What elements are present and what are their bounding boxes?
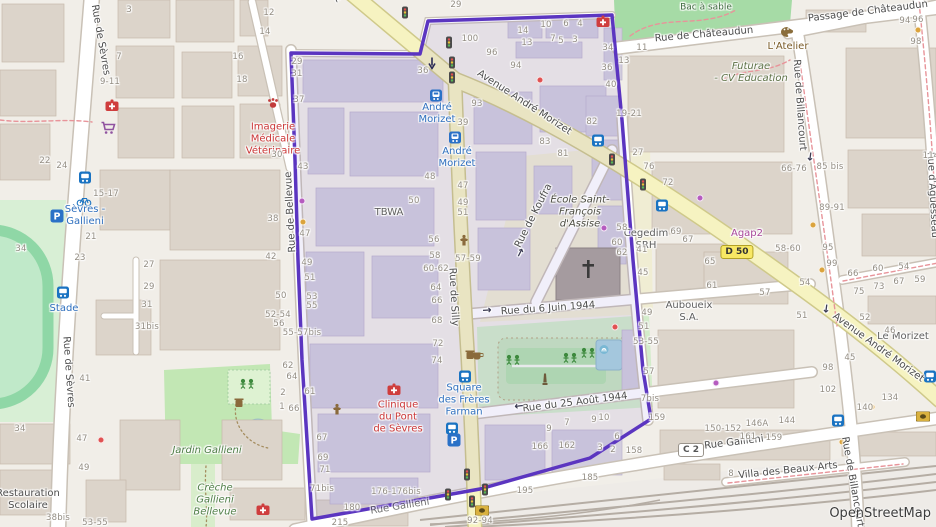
attribution-link[interactable]: OpenStreetMap [829, 506, 931, 521]
map-base-layer [0, 0, 936, 527]
selected-area-boundary [291, 15, 651, 519]
map-canvas[interactable]: OpenStreetMap Rue de SèvresRue de Sèvres… [0, 0, 936, 527]
